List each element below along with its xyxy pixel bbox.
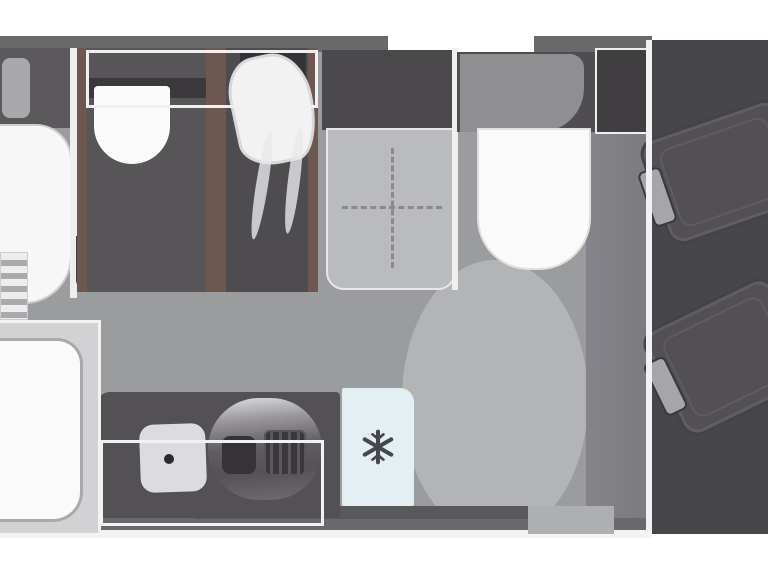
page-margin-top [0,0,768,36]
wardrobe-cabinet [595,48,652,134]
snowflake-icon [360,429,396,465]
washroom-window-outline [86,50,318,108]
entry-door-opening [528,506,614,534]
fridge-freezer [342,388,414,506]
front-bed-cushion [0,338,83,522]
bed-steps [0,252,28,320]
page-margin-bottom [0,538,768,576]
table-extension-marker-horizontal [342,206,442,209]
cab-partition-wall [646,40,652,534]
kitchen-window-outline [100,440,324,526]
rear-bed-pillow [2,58,30,118]
bench-seat-back [460,54,584,132]
dinette-seat-back [322,50,452,130]
floorplan-canvas [0,0,768,576]
door-swing-area [402,260,588,538]
bench-seat-cushion [477,128,591,270]
